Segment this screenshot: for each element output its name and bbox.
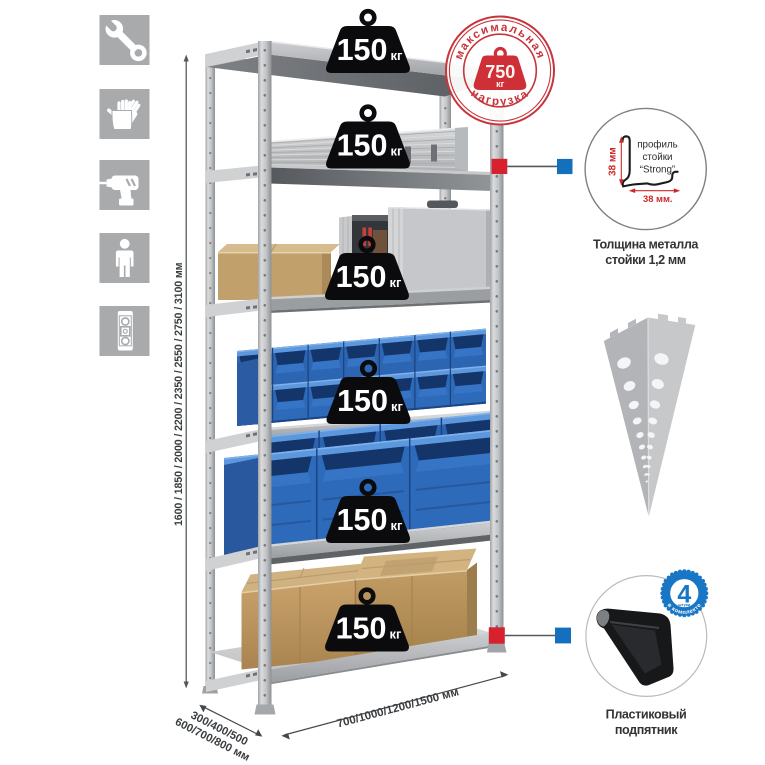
svg-text:стойки 1,2 мм: стойки 1,2 мм <box>605 253 686 267</box>
svg-text:кг: кг <box>496 79 505 89</box>
svg-text:38 мм.: 38 мм. <box>643 193 673 204</box>
svg-text:Толщина металла: Толщина металла <box>593 238 699 252</box>
svg-text:подпятник: подпятник <box>615 723 678 737</box>
svg-text:стойки: стойки <box>643 152 673 163</box>
svg-text:профиль: профиль <box>637 140 678 151</box>
svg-text:Пластиковый: Пластиковый <box>606 708 687 722</box>
svg-text:штуки: штуки <box>678 602 691 607</box>
svg-text:1600 / 1850 / 2000 / 2200 / 23: 1600 / 1850 / 2000 / 2200 / 2350 / 2550 … <box>173 262 185 526</box>
svg-text:38 мм: 38 мм <box>608 147 619 176</box>
svg-text:“Strong”: “Strong” <box>640 165 675 176</box>
